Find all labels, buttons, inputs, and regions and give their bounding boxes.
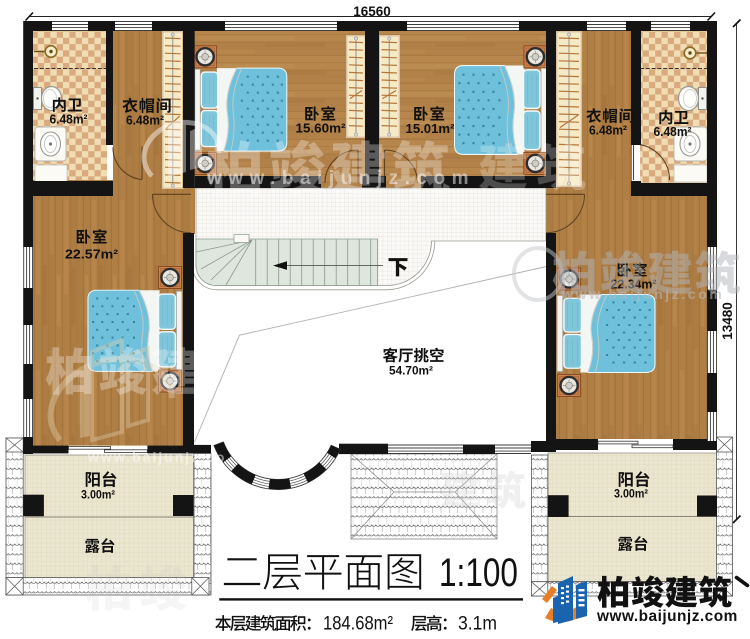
svg-text:16560: 16560 <box>353 4 391 19</box>
svg-text:22.57m²: 22.57m² <box>65 248 118 262</box>
svg-text:6.48m²: 6.48m² <box>126 114 164 128</box>
svg-text:www.baijunjz.com: www.baijunjz.com <box>206 168 475 189</box>
svg-text:6.48m²: 6.48m² <box>654 125 692 139</box>
svg-text:www.baijunjz.co: www.baijunjz.co <box>87 449 226 465</box>
svg-text:3.00m²: 3.00m² <box>81 488 115 502</box>
svg-text:13480: 13480 <box>720 302 735 340</box>
svg-text:15.01m²: 15.01m² <box>406 122 455 136</box>
svg-text:6.48m²: 6.48m² <box>50 113 88 127</box>
svg-text:6.48m²: 6.48m² <box>589 124 627 138</box>
svg-text:www.baijunjz.com: www.baijunjz.com <box>561 286 724 302</box>
svg-text:www.baijunjz.com: www.baijunjz.com <box>596 608 738 625</box>
svg-text:3.00m²: 3.00m² <box>614 487 648 501</box>
svg-text:184.68m²: 184.68m² <box>323 613 393 635</box>
svg-text:15.60m²: 15.60m² <box>296 122 346 136</box>
svg-text:54.70m²: 54.70m² <box>389 364 433 378</box>
svg-text:1:100: 1:100 <box>439 551 518 595</box>
svg-text:3.1m: 3.1m <box>458 613 497 635</box>
